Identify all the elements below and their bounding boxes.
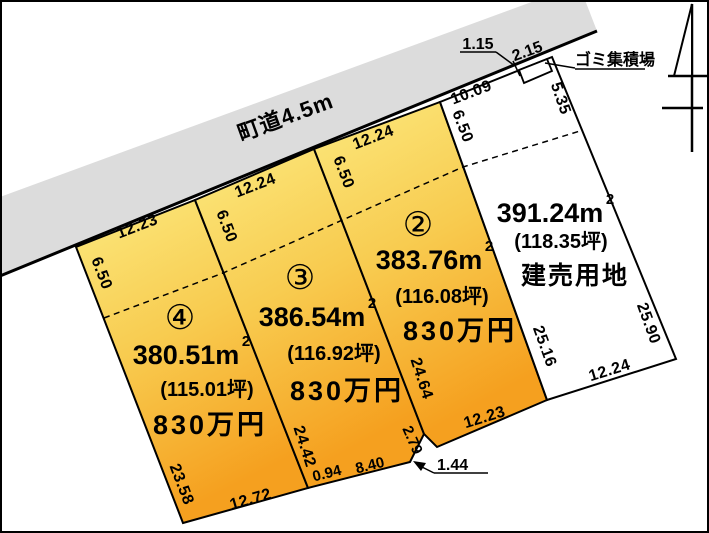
- plot-right-tsubo: (118.35坪): [514, 230, 607, 253]
- garbage-station-label: ゴミ集積場: [575, 50, 655, 69]
- plot-3-price: 830万円: [290, 376, 404, 406]
- dim-plot2-step: 1.44: [437, 457, 468, 474]
- plot-2-area-sup: 2: [485, 238, 493, 255]
- plot-4-number: ④: [165, 299, 195, 337]
- plot-3-tsubo: (116.92坪): [287, 342, 380, 365]
- plot-2-number: ②: [403, 206, 433, 244]
- site-plan-canvas: 町道4.5m ④ 380.51m 2 (115.01坪) 830万円 ③ 386…: [0, 0, 709, 533]
- plot-2-area: 383.76m: [376, 245, 483, 275]
- plot-2-price: 830万円: [403, 316, 517, 346]
- plot-right-area: 391.24m: [497, 198, 604, 228]
- plot-4-price: 830万円: [153, 410, 267, 440]
- plot-3-number: ③: [285, 259, 315, 297]
- plot-3-area-sup: 2: [368, 295, 376, 312]
- plot-2-tsubo: (116.08坪): [395, 285, 488, 308]
- plot-right-area-sup: 2: [606, 191, 614, 208]
- north-arrow-icon: [662, 4, 707, 152]
- step-leader-arrowhead: [413, 461, 426, 471]
- plot-4-area-sup: 2: [242, 333, 250, 350]
- site-plan: 町道4.5m ④ 380.51m 2 (115.01坪) 830万円 ③ 386…: [0, 0, 709, 533]
- plot-4-tsubo: (115.01坪): [160, 378, 253, 401]
- dim-garbage-offset: 1.15: [462, 36, 493, 53]
- plot-3-area: 386.54m: [259, 302, 366, 332]
- plot-4-area: 380.51m: [133, 340, 240, 370]
- plot-right-use: 建売用地: [521, 262, 629, 290]
